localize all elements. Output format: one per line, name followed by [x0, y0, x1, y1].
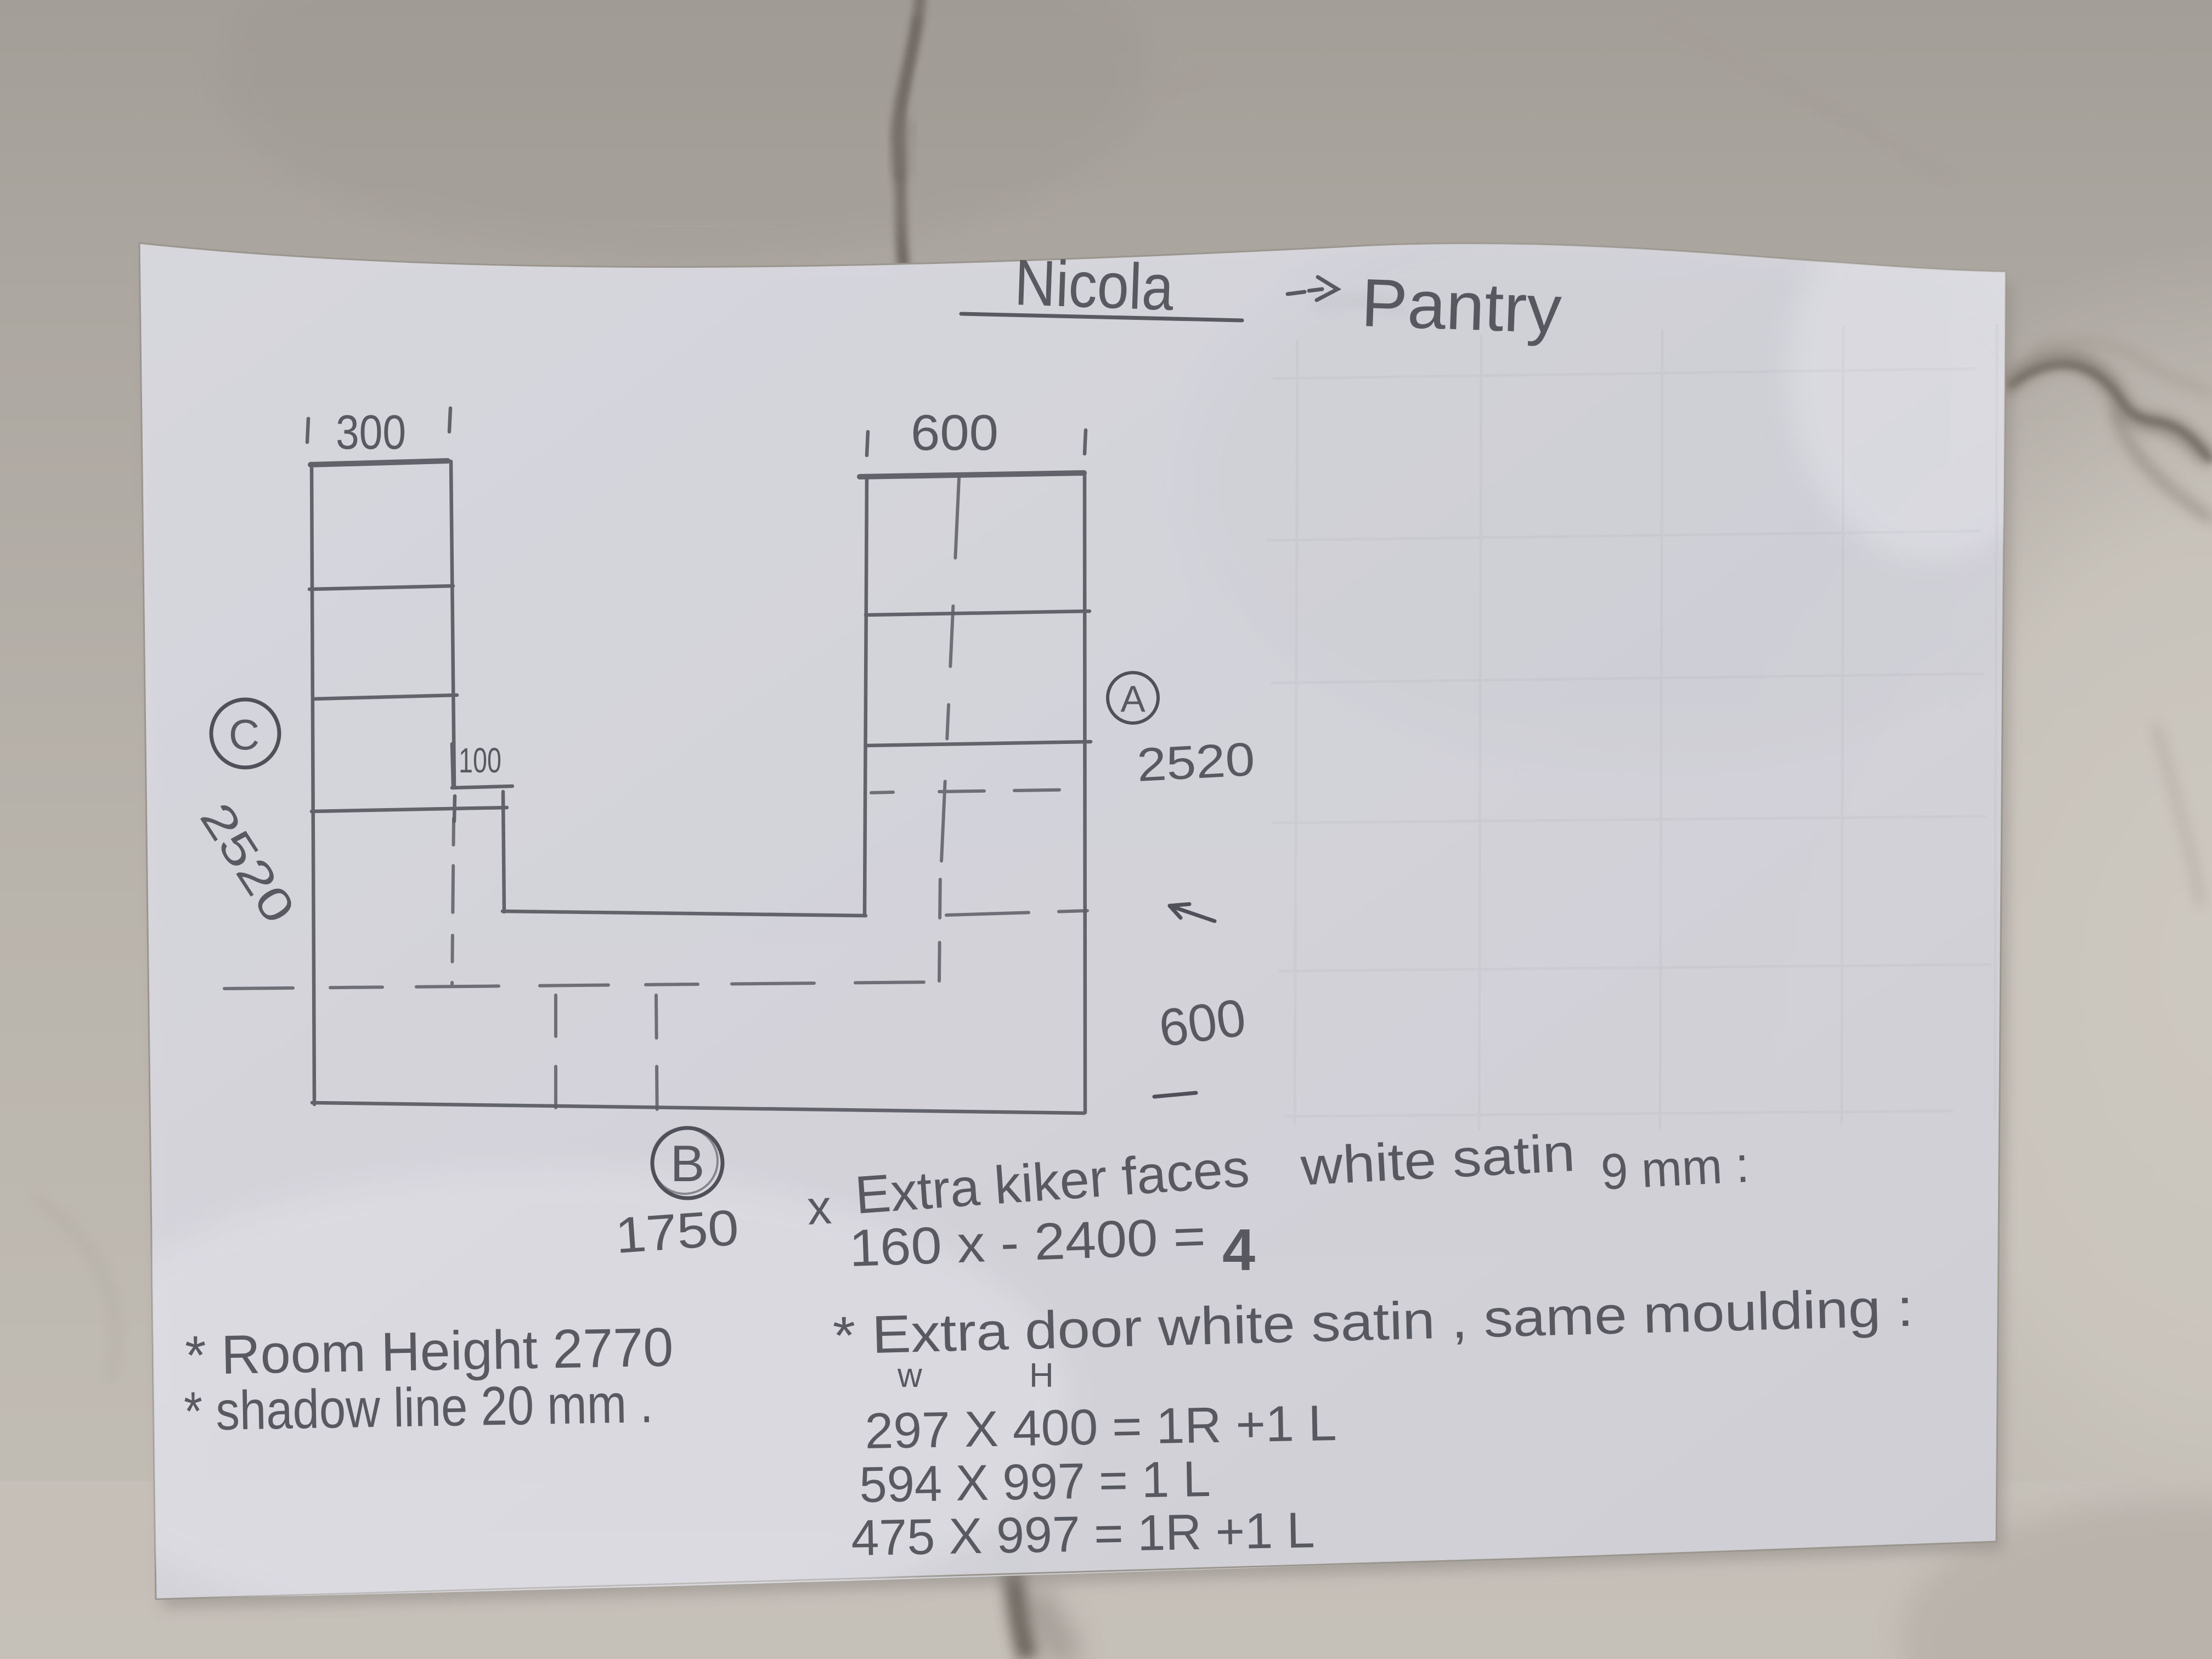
svg-text:9 mm :: 9 mm :: [1600, 1137, 1751, 1200]
svg-text:100: 100: [459, 741, 501, 780]
svg-text:300: 300: [336, 405, 406, 459]
svg-text:x: x: [806, 1180, 833, 1235]
svg-text:4: 4: [1222, 1216, 1255, 1283]
svg-text:600: 600: [1155, 988, 1249, 1058]
svg-text:A: A: [1120, 678, 1145, 720]
svg-text:160 x - 2400 =: 160 x - 2400 =: [848, 1207, 1206, 1278]
svg-text:B: B: [670, 1135, 705, 1192]
svg-text:2520: 2520: [1136, 733, 1256, 792]
svg-text:1750: 1750: [613, 1200, 741, 1264]
svg-text:475 X 997 = 1R +1 L: 475 X 997 = 1R +1 L: [851, 1502, 1316, 1566]
svg-text:297 X 400 = 1R +1 L: 297 X 400 = 1R +1 L: [865, 1395, 1338, 1459]
svg-text:600: 600: [911, 405, 998, 461]
svg-text:H: H: [1029, 1357, 1054, 1395]
svg-text:w: w: [897, 1357, 922, 1395]
svg-text:Pantry: Pantry: [1360, 265, 1563, 348]
svg-text:C: C: [229, 710, 259, 759]
svg-text:* shadow line 20 mm .: * shadow line 20 mm .: [183, 1373, 653, 1442]
svg-text:Nicola: Nicola: [1013, 246, 1175, 324]
svg-text:594 X 997 = 1 L: 594 X 997 = 1 L: [859, 1451, 1211, 1513]
